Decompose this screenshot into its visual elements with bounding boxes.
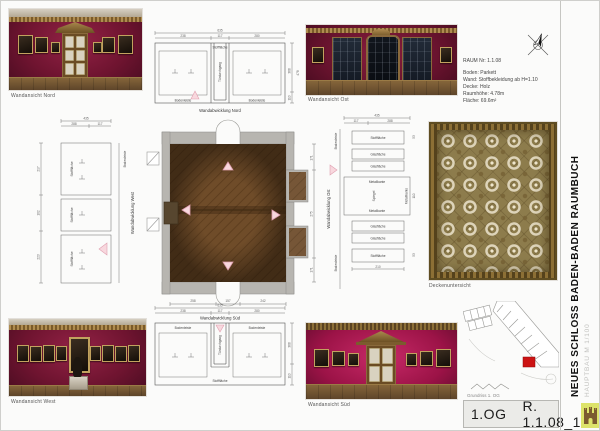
painting xyxy=(440,47,452,63)
painting xyxy=(102,37,115,53)
painting xyxy=(348,353,359,366)
svg-text:288: 288 xyxy=(387,119,393,123)
site-plan xyxy=(463,301,559,393)
panel-outlines xyxy=(344,131,410,262)
info-floor: Boden: Parkett xyxy=(463,70,555,77)
info-ceiling: Decke: Holz xyxy=(463,84,555,91)
caption-elevation-east: Wandabwicklung Ost xyxy=(326,189,331,229)
fabric-panels xyxy=(61,143,111,283)
svg-text:275: 275 xyxy=(310,211,314,217)
painting xyxy=(43,345,55,362)
painting xyxy=(35,37,48,53)
svg-text:478: 478 xyxy=(296,70,300,76)
svg-text:288: 288 xyxy=(71,122,77,126)
painting xyxy=(102,345,114,362)
svg-text:Stofffläche: Stofffläche xyxy=(213,46,228,50)
window-bay-floor xyxy=(289,228,306,256)
ceiling-strip xyxy=(9,9,142,17)
svg-text:117: 117 xyxy=(217,309,222,313)
cornice xyxy=(306,323,457,330)
painting xyxy=(314,349,329,367)
svg-text:171: 171 xyxy=(310,267,314,273)
room-info-block: RAUM Nr: 1.1.08 Boden: Parkett Wand: Sto… xyxy=(463,58,555,105)
sidebar-title: NEUES SCHLOSS BADEN-BADEN RAUMBUCH xyxy=(570,156,581,397)
svg-text:635: 635 xyxy=(217,304,223,308)
caption-wall-south: Wandansicht Süd xyxy=(308,402,350,408)
svg-text:435: 435 xyxy=(374,114,380,118)
dimension-lines xyxy=(340,116,410,289)
svg-text:210: 210 xyxy=(375,265,381,269)
window-bay xyxy=(332,37,362,83)
view-marker-triangle xyxy=(330,165,337,175)
position-marks xyxy=(79,159,85,269)
stove xyxy=(164,202,178,224)
caption-ceiling: Deckenuntersicht xyxy=(429,283,471,289)
info-height: Raumhöhe: 4.78m xyxy=(463,91,555,98)
cornice xyxy=(9,17,142,22)
dimension-lines xyxy=(39,119,119,283)
room-id-label: R. 1.1.08_1 xyxy=(522,398,581,430)
svg-text:117: 117 xyxy=(217,34,222,38)
svg-text:Stofffläche: Stofffläche xyxy=(70,251,74,266)
north-compass-icon xyxy=(525,32,551,58)
info-wall: Wand: Stoffbekleidung ab H=1.10 xyxy=(463,77,555,84)
elevation-drawing-south: 635 238 117 280 368 110 Wandabwicklung S… xyxy=(145,303,303,399)
svg-text:53: 53 xyxy=(412,253,416,257)
svg-text:Stofffläche: Stofffläche xyxy=(371,254,386,258)
svg-text:Bodenleiste: Bodenleiste xyxy=(175,99,192,103)
elevation-drawing-west: 435 288 117 217 102 223 Stofffläche Stof… xyxy=(27,115,145,295)
svg-text:Stofffläche: Stofffläche xyxy=(371,136,386,140)
svg-text:Glasfläche: Glasfläche xyxy=(370,237,385,241)
door-pediment xyxy=(55,22,95,33)
caption-wall-west: Wandansicht West xyxy=(11,399,56,405)
svg-text:Bodenleiste: Bodenleiste xyxy=(175,326,192,330)
svg-text:Glasfläche: Glasfläche xyxy=(370,165,385,169)
svg-text:Spiegel: Spiegel xyxy=(372,190,376,201)
wainscot xyxy=(306,384,457,399)
door-pediment xyxy=(358,331,404,342)
svg-text:53: 53 xyxy=(412,135,416,139)
svg-text:Stofffläche: Stofffläche xyxy=(213,379,228,383)
svg-text:117: 117 xyxy=(353,119,358,123)
svg-text:Bodenleiste: Bodenleiste xyxy=(123,150,127,167)
painting xyxy=(406,353,417,366)
window-bay-floor xyxy=(289,172,306,200)
elevation-drawing-north: 635 238 117 280 368 110 478 Stofffläche … xyxy=(145,27,303,119)
svg-text:Bodenleiste: Bodenleiste xyxy=(249,326,266,330)
cornice xyxy=(9,325,146,330)
svg-text:Türdurchgang: Türdurchgang xyxy=(218,335,222,355)
svg-text:280: 280 xyxy=(254,34,260,38)
room-highlight xyxy=(523,357,535,367)
sheet-divider xyxy=(560,1,561,431)
room-number: RAUM Nr: 1.1.08 xyxy=(463,58,555,65)
svg-text:Türdurchgang: Türdurchgang xyxy=(218,62,222,82)
painting xyxy=(17,345,29,362)
elevation-drawing-east: 435 117 288 210 Stofffläche Glasfläche G… xyxy=(324,113,426,299)
painting xyxy=(93,42,102,53)
sidebar-subtitle: HAUPTBAU M 1/100 xyxy=(584,324,591,398)
painting xyxy=(115,346,127,362)
building-outlines xyxy=(463,301,559,367)
svg-text:Metallkante: Metallkante xyxy=(369,209,386,213)
svg-text:Bodenleiste: Bodenleiste xyxy=(334,254,338,271)
wainscot xyxy=(9,77,142,90)
mirror-bay xyxy=(366,35,400,85)
svg-text:217: 217 xyxy=(37,166,41,172)
wall-section-symbols xyxy=(147,152,159,231)
view-marker-triangle xyxy=(99,243,107,255)
svg-text:368: 368 xyxy=(288,68,292,74)
painting xyxy=(420,351,433,366)
photo-wall-east xyxy=(306,25,457,95)
photo-wall-north xyxy=(9,9,142,90)
svg-text:171: 171 xyxy=(310,155,314,161)
photo-wall-south xyxy=(306,323,457,399)
door xyxy=(62,33,88,78)
painting xyxy=(436,349,451,367)
svg-text:635: 635 xyxy=(217,29,223,33)
ceiling-field xyxy=(437,130,549,272)
painting xyxy=(18,35,33,54)
svg-text:Metallkante: Metallkante xyxy=(405,188,409,205)
title-block: 1.OG R. 1.1.08_1 xyxy=(463,400,559,428)
painting xyxy=(30,346,42,362)
svg-text:Bodenleiste: Bodenleiste xyxy=(249,99,266,103)
svg-text:Metallkante: Metallkante xyxy=(369,180,386,184)
info-area: Fläche: 69.6m² xyxy=(463,98,555,105)
statue-pedestal xyxy=(69,376,88,390)
floor-plan: 258 157 242 171 275 171 xyxy=(146,118,322,314)
svg-text:Glasfläche: Glasfläche xyxy=(370,225,385,229)
painting xyxy=(90,346,101,361)
castle-icon xyxy=(583,406,598,425)
site-plan-label: Grundriss 1. OG xyxy=(467,393,500,398)
svg-text:Stofffläche: Stofffläche xyxy=(70,161,74,176)
caption-wall-east: Wandansicht Ost xyxy=(308,97,349,103)
caption-elevation-south: Wandabwicklung Süd xyxy=(200,316,241,321)
window-bay xyxy=(402,37,432,83)
caption-wall-north: Wandansicht Nord xyxy=(11,93,55,99)
svg-text:Stofffläche: Stofffläche xyxy=(70,207,74,222)
svg-text:238: 238 xyxy=(180,309,186,313)
photo-wall-west xyxy=(9,319,146,396)
svg-text:110: 110 xyxy=(288,373,292,378)
painting xyxy=(128,345,140,362)
svg-text:435: 435 xyxy=(83,117,89,121)
dimension-lines xyxy=(155,31,294,103)
svg-text:110: 110 xyxy=(412,193,416,198)
painting xyxy=(118,35,133,54)
svg-text:280: 280 xyxy=(254,309,260,313)
floor-label: 1.OG xyxy=(471,406,506,422)
painting xyxy=(332,351,345,366)
svg-text:Bodenleiste: Bodenleiste xyxy=(334,132,338,149)
caption-elevation-north: Wandabwicklung Nord xyxy=(199,108,241,113)
svg-text:223: 223 xyxy=(37,254,41,260)
view-marker-triangle xyxy=(216,325,224,332)
svg-text:117: 117 xyxy=(97,122,102,126)
caption-elevation-west: Wandabwicklung West xyxy=(130,191,135,234)
photo-ceiling xyxy=(429,122,557,280)
statue xyxy=(73,357,82,377)
svg-text:102: 102 xyxy=(37,210,41,216)
painting xyxy=(51,42,60,53)
painting xyxy=(312,47,324,63)
svg-text:110: 110 xyxy=(288,95,292,100)
castle-stamp xyxy=(581,403,600,428)
svg-text:368: 368 xyxy=(288,342,292,348)
painting xyxy=(56,346,67,361)
svg-text:238: 238 xyxy=(180,34,186,38)
door xyxy=(366,345,396,385)
wainscot xyxy=(306,80,457,95)
svg-text:Glasfläche: Glasfläche xyxy=(370,153,385,157)
stair-hatch xyxy=(471,384,509,389)
raumbuch-sheet: Wandansicht Nord 635 238 117 280 368 110… xyxy=(0,0,600,431)
